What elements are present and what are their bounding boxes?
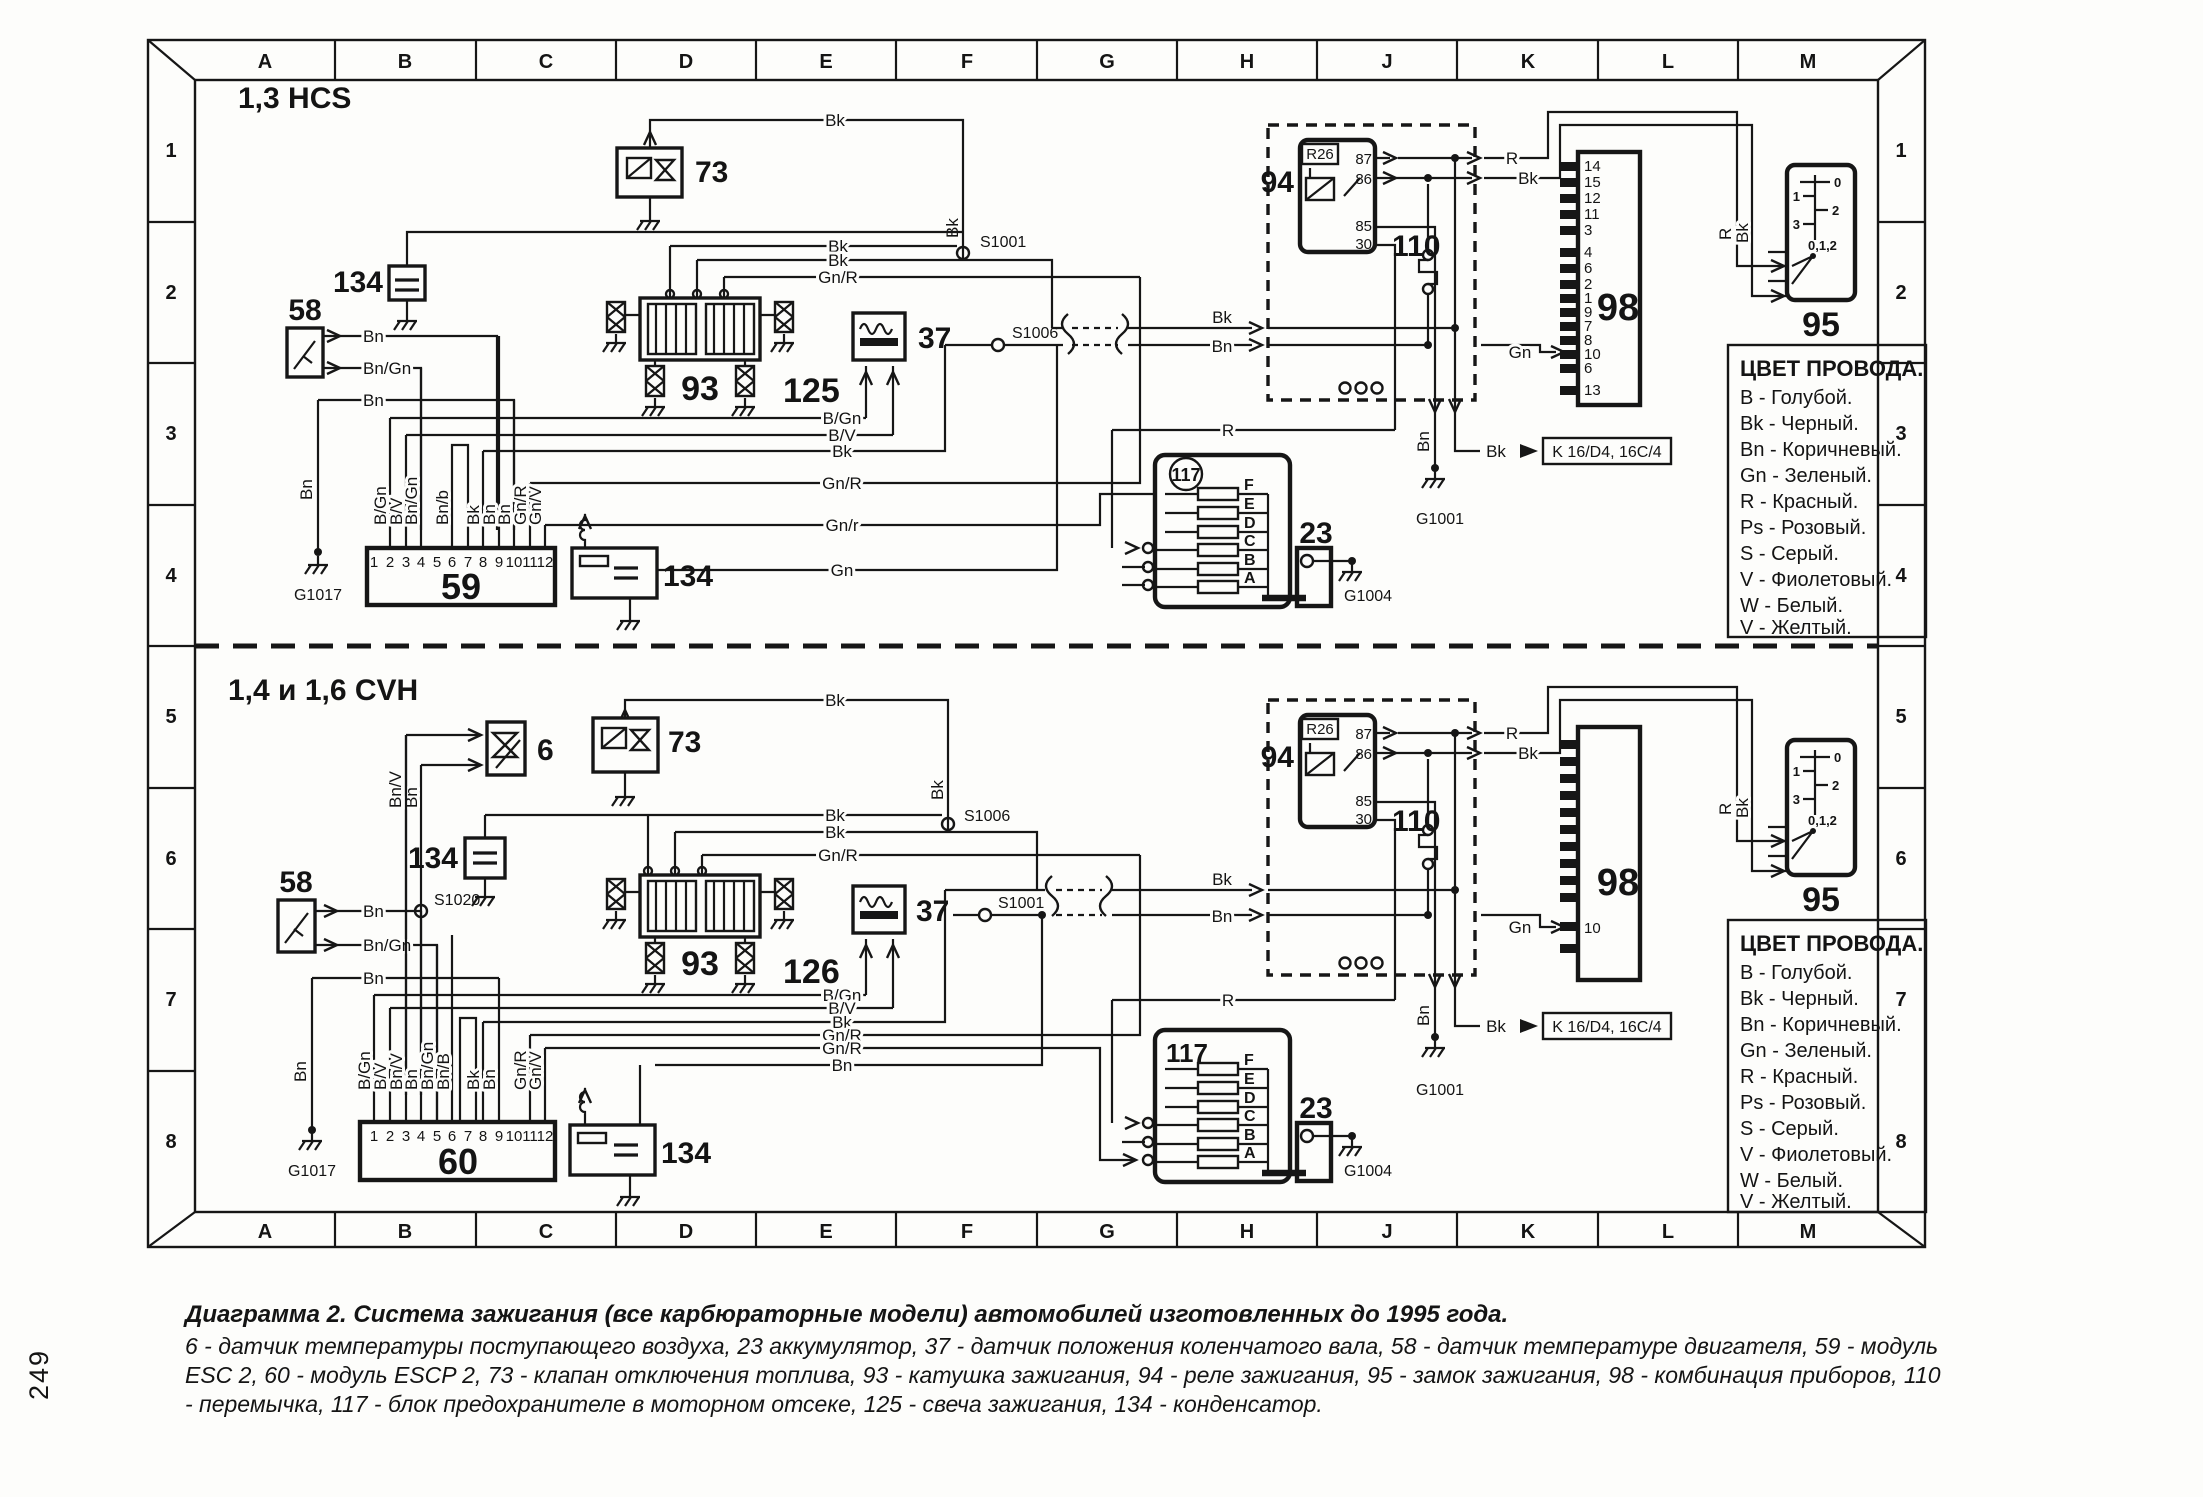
fuse-letter: A <box>1244 1145 1256 1162</box>
fuse-letter: F <box>1244 477 1254 494</box>
grid-col: A <box>258 51 272 73</box>
cluster-pin: 6 <box>1584 260 1592 277</box>
grid-col: G <box>1099 51 1115 73</box>
legend-entry: V - Желтый. <box>1740 617 1852 639</box>
riser-label: Bn <box>480 1069 499 1090</box>
fuse-letter: C <box>1244 1108 1256 1125</box>
wire-label-bngn: Bn/Gn <box>363 936 411 955</box>
cluster-pin-10: 10 <box>1584 920 1601 937</box>
junction-label: S1001 <box>998 895 1044 912</box>
grid-row: 3 <box>165 423 176 445</box>
section-title: 1,3 HCS <box>238 82 351 115</box>
module-pin: 1 <box>370 554 378 571</box>
fuse-letter: E <box>1244 496 1255 513</box>
riser-label: Bn/B <box>434 1053 453 1090</box>
legend-entry: Bn - Коричневый. <box>1740 1014 1902 1036</box>
component-number: 117 <box>1171 465 1200 485</box>
module-pin: 4 <box>417 554 425 571</box>
wire-label-gn: Gn <box>1509 918 1532 937</box>
grid-col: G <box>1099 1221 1115 1243</box>
component-number: 6 <box>537 734 554 767</box>
legend-entry: V - Фиолетовый. <box>1740 1144 1892 1166</box>
component-number: 94 <box>1261 166 1295 199</box>
legend-entry: R - Красный. <box>1740 1066 1858 1088</box>
grid-row: 4 <box>1895 565 1907 587</box>
junction-label: S1020 <box>434 892 480 909</box>
component-number: 23 <box>1299 517 1332 550</box>
wire-label-bk: Bk <box>1486 1017 1506 1036</box>
ignition-coil-93: 93 126 <box>603 815 840 993</box>
wire-label-bk: Bk <box>1733 798 1752 818</box>
wire-label-bn: Bn <box>1212 907 1233 926</box>
switch-pos: 3 <box>1793 792 1800 807</box>
cluster-pin: 14 <box>1584 158 1601 175</box>
wire-label-gn: Gn <box>831 561 854 580</box>
module-pin: 10 <box>506 1128 523 1145</box>
ref-box: K 16/D4, 16C/4 <box>1552 444 1662 461</box>
component-number: 37 <box>918 322 951 355</box>
fuse-letter: B <box>1244 552 1256 569</box>
grid-col: L <box>1662 51 1674 73</box>
legend-entry: В - Голубой. <box>1740 387 1853 409</box>
instrument-cluster-98: 10 98 <box>1560 727 1640 980</box>
component-number: 23 <box>1299 1092 1332 1125</box>
grid-col: C <box>539 51 553 73</box>
junction-s1006: S1006 Bk Bn <box>945 308 1262 356</box>
grid-col: K <box>1521 51 1536 73</box>
grid-row: 6 <box>165 848 176 870</box>
section-title: 1,4 и 1,6 CVH <box>228 674 418 707</box>
ignition-coil-93: 93 125 <box>603 246 840 416</box>
ground-label: G1017 <box>288 1163 336 1180</box>
wire-label-bn: Bn <box>1414 431 1433 452</box>
junction-s1001: S1001 Bk Bn <box>945 870 1262 926</box>
grid-row: 1 <box>1895 140 1906 162</box>
ground-label: G1001 <box>1416 511 1464 528</box>
legend-entry: W - Белый. <box>1740 1170 1843 1192</box>
wire-label-bn: Bn <box>1212 337 1233 356</box>
grid-col: L <box>1662 1221 1674 1243</box>
legend-entry: Bk - Черный. <box>1740 988 1859 1010</box>
relay-pin-87: 87 <box>1355 151 1372 168</box>
wire-label-bn: Bn <box>363 327 384 346</box>
wire-label-bn: Bn <box>363 902 384 921</box>
grid-col: J <box>1381 1221 1392 1243</box>
grid-col: J <box>1381 51 1392 73</box>
module-pin: 4 <box>417 1128 425 1145</box>
grid-col: C <box>539 1221 553 1243</box>
fuse-letter: B <box>1244 1127 1256 1144</box>
grid-col: D <box>679 1221 693 1243</box>
grid-row: 4 <box>165 565 177 587</box>
relay-pin-87: 87 <box>1355 726 1372 743</box>
module-pin: 9 <box>495 1128 503 1145</box>
junction-label: S1006 <box>1012 325 1058 342</box>
legend-entry: Ps - Розовый. <box>1740 1092 1866 1114</box>
riser-label: Bn/b <box>433 490 452 525</box>
module-pin: 9 <box>495 554 503 571</box>
fuse-letter: D <box>1244 1090 1256 1107</box>
caption: Диаграмма 2. Система зажигания (все карб… <box>183 1301 1941 1417</box>
junction-label: S1001 <box>980 234 1026 251</box>
wire-label-r: R <box>1222 421 1234 440</box>
switch-pos: 0 <box>1834 175 1841 190</box>
legend-entry: W - Белый. <box>1740 595 1843 617</box>
switch-pos: 3 <box>1793 217 1800 232</box>
cluster-pin: 3 <box>1584 222 1592 239</box>
fuse-letter: E <box>1244 1071 1255 1088</box>
grid-row: 7 <box>1895 989 1906 1011</box>
switch-range: 0,1,2 <box>1808 813 1837 828</box>
engine-fusebox-117: R 117 F E D C B A <box>1112 421 1395 607</box>
wire-label-r: R <box>1222 991 1234 1010</box>
caption-line: ESC 2, 60 - модуль ESCP 2, 73 - клапан о… <box>185 1362 1941 1388</box>
grid-row: 2 <box>1895 282 1906 304</box>
relay-pin-30: 30 <box>1355 811 1372 828</box>
legend-title: ЦВЕТ ПРОВОДА. <box>1740 356 1923 381</box>
grid-row: 8 <box>1895 1131 1906 1153</box>
component-number: 94 <box>1261 741 1295 774</box>
escp-module-60: 1 2 3 4 5 6 7 8 9 10 11 12 60 B/Gn B/V B… <box>355 735 555 1182</box>
wire-label-bk: Bk <box>1212 308 1232 327</box>
grid-col: F <box>961 1221 973 1243</box>
component-number: 73 <box>668 726 701 759</box>
riser-label: Gn/V <box>526 1051 545 1090</box>
component-number: 134 <box>408 842 458 875</box>
junction-s1006: S1006 Bk Bk Gn/R <box>485 806 1140 890</box>
component-number: 59 <box>441 566 481 607</box>
wire-label-gnr: Gn/R <box>822 474 862 493</box>
grid-row: 5 <box>165 706 176 728</box>
grid-col: H <box>1240 51 1254 73</box>
module-pin: 11 <box>522 1128 538 1145</box>
module-pin: 12 <box>537 554 554 571</box>
caption-title: Диаграмма 2. Система зажигания (все карб… <box>183 1301 1508 1328</box>
component-number: 58 <box>288 294 321 327</box>
wire-label-gnr: Gn/R <box>818 268 858 287</box>
fuse-letter: F <box>1244 1052 1254 1069</box>
component-number: 98 <box>1597 287 1639 329</box>
riser-label: Gn/V <box>526 486 545 525</box>
wire-label-bk: Bk <box>1518 744 1538 763</box>
legend-entry: R - Красный. <box>1740 491 1858 513</box>
ref-box: K 16/D4, 16C/4 <box>1552 1019 1662 1036</box>
grid-row: 7 <box>165 989 176 1011</box>
relay-pin-86: 86 <box>1355 171 1372 188</box>
grid-row: 1 <box>165 140 176 162</box>
grid-col: B <box>398 51 412 73</box>
module-pin: 2 <box>386 554 394 571</box>
ignition-switch-95: 0 1 2 3 0,1,2 95 <box>1768 165 1855 344</box>
wire-label-bk: Bk <box>825 823 845 842</box>
ground-label: G1001 <box>1416 1082 1464 1099</box>
wire-label-bk: Bk <box>1733 223 1752 243</box>
relay-pin-86: 86 <box>1355 746 1372 763</box>
fuel-cutoff-valve-73: 73 Bk Bk <box>593 691 948 815</box>
condenser-134-second: 134 <box>572 514 713 630</box>
grid-col: D <box>679 51 693 73</box>
component-number: 134 <box>663 560 713 593</box>
caption-line: 6 - датчик температуры поступающего возд… <box>185 1333 1938 1359</box>
ignition-switch-95: 0 1 2 3 0,1,2 95 <box>1768 740 1855 919</box>
ground-label: G1017 <box>294 587 342 604</box>
instrument-cluster-98: 14 15 12 11 3 4 6 2 1 9 7 8 10 6 13 98 <box>1560 152 1640 405</box>
component-number: 134 <box>661 1137 711 1170</box>
wire-label-gn: Gn <box>1509 343 1532 362</box>
section-13hcs: 1,3 HCS 73 Bk Bk 134 S1001 Bk Bk Gn/R 58… <box>238 82 1926 639</box>
wire-label-bn: Bn <box>363 391 384 410</box>
legend-entry: Gn - Зеленый. <box>1740 1040 1872 1062</box>
legend-entry: В - Голубой. <box>1740 962 1853 984</box>
wire-color-legend-top: ЦВЕТ ПРОВОДА. В - Голубой. Bk - Черный. … <box>1728 345 1926 639</box>
wire-label-bk: Bk <box>1486 442 1506 461</box>
switch-pos: 2 <box>1832 778 1839 793</box>
legend-entry: Bk - Черный. <box>1740 413 1859 435</box>
cluster-pin: 15 <box>1584 174 1601 191</box>
switch-pos: 2 <box>1832 203 1839 218</box>
wire-label-bk: Bk <box>928 780 947 800</box>
legend-entry: S - Серый. <box>1740 1118 1839 1140</box>
fuse-letter: C <box>1244 533 1256 550</box>
relay-pin-85: 85 <box>1355 218 1372 235</box>
component-number: 60 <box>438 1141 478 1182</box>
wire-label-bn: Bn <box>832 1056 853 1075</box>
switch-range: 0,1,2 <box>1808 238 1837 253</box>
wire-label-bngn: Bn/Gn <box>363 359 411 378</box>
wire-label-r: R <box>1506 149 1518 168</box>
legend-entry: V - Желтый. <box>1740 1191 1852 1213</box>
ignition-relay-94: R26 87 86 85 30 94 110 <box>1261 125 1480 430</box>
module-pin: 3 <box>402 1128 410 1145</box>
module-pin: 2 <box>386 1128 394 1145</box>
module-pin: 8 <box>479 1128 487 1145</box>
grid-col: A <box>258 1221 272 1243</box>
grid-col: B <box>398 1221 412 1243</box>
ignition-relay-94: R26 87 86 85 30 94 110 <box>1261 700 1480 1000</box>
cluster-pin: 6 <box>1584 360 1592 377</box>
wire-label-bk: Bk <box>943 218 962 238</box>
junction-label: S1006 <box>964 808 1010 825</box>
grid-row: 6 <box>1895 848 1906 870</box>
ground-label: G1004 <box>1344 588 1392 605</box>
grid-col: F <box>961 51 973 73</box>
component-number: 93 <box>681 370 719 408</box>
wire-bundle-labels: B/Gn B/V Bk Gn/R Gn/r Gn <box>483 277 1162 580</box>
wire-label-bn: Bn <box>291 1061 310 1082</box>
module-pin: 10 <box>506 554 523 571</box>
wire-label-gnr-lower: Gn/r <box>825 516 858 535</box>
legend-entry: Ps - Розовый. <box>1740 517 1866 539</box>
legend-entry: S - Серый. <box>1740 543 1839 565</box>
cluster-pin: 11 <box>1584 206 1600 223</box>
legend-entry: V - Фиолетовый. <box>1740 569 1892 591</box>
legend-entry: Gn - Зеленый. <box>1740 465 1872 487</box>
grid-col: M <box>1800 51 1817 73</box>
wire-label-bk: Bk <box>832 442 852 461</box>
wire-label-bk: Bk <box>825 111 845 130</box>
module-pin: 12 <box>537 1128 554 1145</box>
wire-label-r: R <box>1506 724 1518 743</box>
grid-col: K <box>1521 1221 1536 1243</box>
caption-line: - перемычка, 117 - блок предохранителе в… <box>185 1391 1323 1417</box>
relay-tag: R26 <box>1306 721 1334 738</box>
cluster-pin: 12 <box>1584 190 1601 207</box>
component-number: 73 <box>695 156 728 189</box>
module-pin: 11 <box>522 554 538 571</box>
switch-pos: 0 <box>1834 750 1841 765</box>
page-number: 249 <box>24 1349 54 1400</box>
scanned-manual-page: A B C D E F G H J K L M A B C D E F G H … <box>0 0 2203 1497</box>
section-14-16cvh: 1,4 и 1,6 CVH 6 Bn/V Bn 73 Bk Bk 134 S10… <box>228 674 1926 1213</box>
wire-label-bk: Bk <box>1518 169 1538 188</box>
fuel-cutoff-valve-73: 73 Bk Bk <box>617 111 963 246</box>
grid-col: H <box>1240 1221 1254 1243</box>
switch-pos: 1 <box>1793 764 1800 779</box>
module-pin: 1 <box>370 1128 378 1145</box>
legend-entry: Bn - Коричневый. <box>1740 439 1902 461</box>
wire-label-bn: Bn <box>1414 1005 1433 1026</box>
component-number: 134 <box>333 266 383 299</box>
component-number: 58 <box>279 866 312 899</box>
legend-title: ЦВЕТ ПРОВОДА. <box>1740 931 1923 956</box>
module-pin: 3 <box>402 554 410 571</box>
relay-pin-30: 30 <box>1355 236 1372 253</box>
fuse-letter: D <box>1244 515 1256 532</box>
grid-row: 8 <box>165 1131 176 1153</box>
grid-row: 2 <box>165 282 176 304</box>
engine-fusebox-117: R 117 F E D C B A <box>1112 991 1395 1182</box>
grid-row: 5 <box>1895 706 1906 728</box>
module-pin: 5 <box>433 554 441 571</box>
wire-label-bk: Bk <box>1212 870 1232 889</box>
component-number: 95 <box>1802 881 1840 919</box>
wire-label-bn: Bn <box>297 479 316 500</box>
switch-pos: 1 <box>1793 189 1800 204</box>
relay-tag: R26 <box>1306 146 1334 163</box>
wire-label-gnr: Gn/R <box>818 846 858 865</box>
fuse-letter: A <box>1244 570 1256 587</box>
cluster-pin: 13 <box>1584 382 1601 399</box>
grid-col: E <box>819 51 832 73</box>
wire-label-bn: Bn <box>402 787 421 808</box>
component-number: 95 <box>1802 306 1840 344</box>
ground-label: G1004 <box>1344 1163 1392 1180</box>
riser-label: Bn/Gn <box>402 477 421 525</box>
wire-label-bn: Bn <box>363 969 384 988</box>
grid-col: E <box>819 1221 832 1243</box>
wire-label-bk: Bk <box>825 691 845 710</box>
component-number: 98 <box>1597 862 1639 904</box>
wire-color-legend-bottom: ЦВЕТ ПРОВОДА. В - Голубой. Bk - Черный. … <box>1728 920 1926 1213</box>
component-number: 125 <box>783 372 840 410</box>
component-number: 93 <box>681 945 719 983</box>
relay-pin-85: 85 <box>1355 793 1372 810</box>
cluster-pin: 4 <box>1584 244 1592 261</box>
grid-col: M <box>1800 1221 1817 1243</box>
